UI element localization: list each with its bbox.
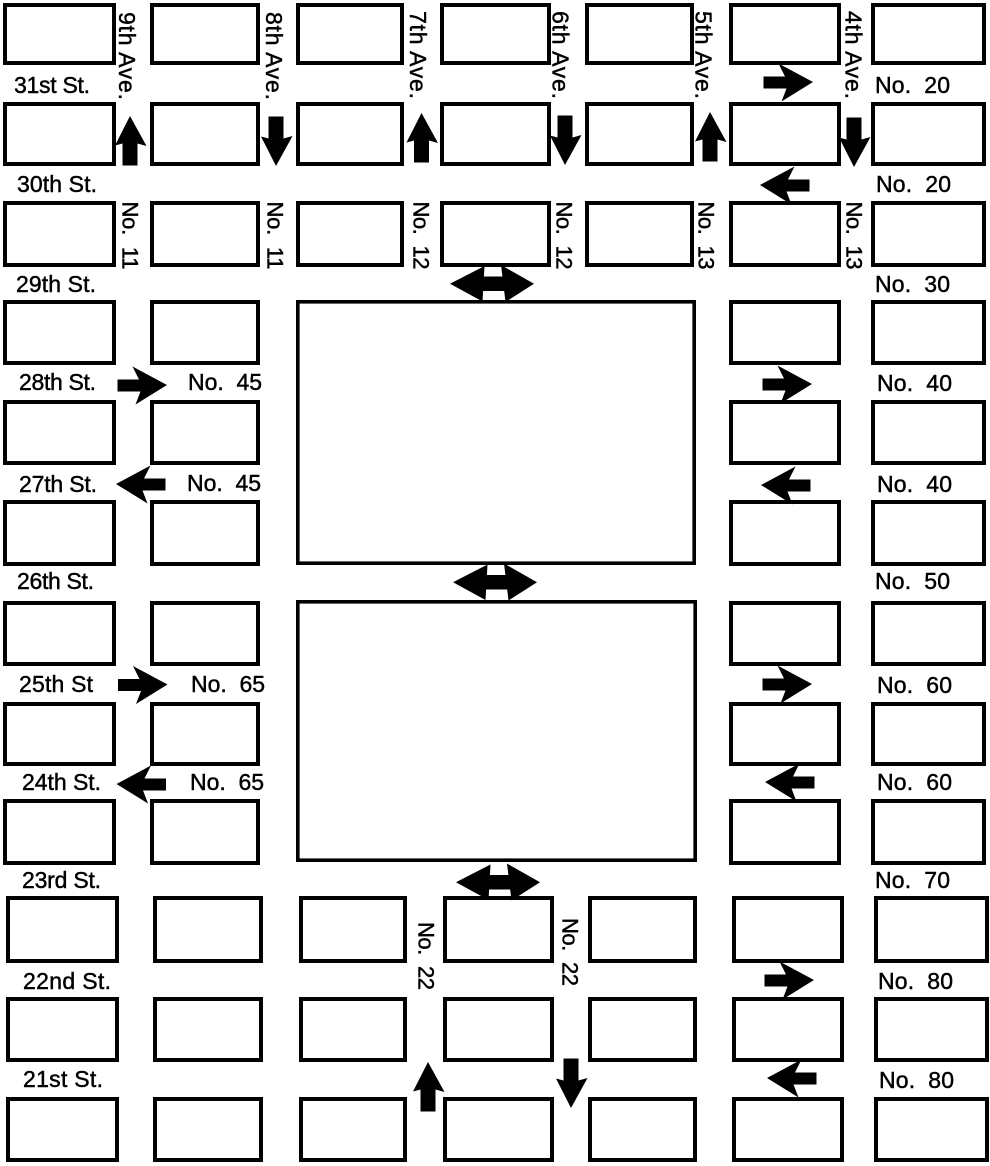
svg-text:9th Ave.: 9th Ave. [114,12,140,100]
svg-text:No. 30: No. 30 [875,271,950,297]
svg-text:5th Ave.: 5th Ave. [691,11,717,99]
svg-text:27th St.: 27th St. [19,471,97,497]
svg-text:24th St.: 24th St. [22,769,101,795]
svg-text:No. 12: No. 12 [409,202,434,270]
svg-text:31st St.: 31st St. [14,72,90,98]
svg-text:25th St: 25th St [19,671,94,697]
svg-text:No. 80: No. 80 [878,968,953,994]
svg-text:4th Ave.: 4th Ave. [841,11,867,99]
svg-text:No. 13: No. 13 [842,202,867,270]
svg-text:No. 40: No. 40 [877,370,952,396]
svg-text:30th St.: 30th St. [17,171,97,197]
svg-text:No. 20: No. 20 [876,171,951,197]
svg-text:29th St.: 29th St. [16,271,96,297]
svg-text:No. 45: No. 45 [188,369,262,395]
svg-text:No. 50: No. 50 [875,568,950,594]
svg-text:No. 80: No. 80 [879,1067,954,1093]
svg-text:No. 20: No. 20 [875,72,950,98]
svg-text:7th Ave.: 7th Ave. [405,11,431,99]
svg-text:No. 22: No. 22 [414,922,439,990]
svg-text:No. 65: No. 65 [191,671,265,697]
svg-text:22nd St.: 22nd St. [23,968,111,994]
svg-text:No. 70: No. 70 [875,867,950,893]
svg-text:No. 13: No. 13 [694,202,719,270]
svg-text:8th Ave.: 8th Ave. [261,12,287,100]
svg-text:28th St.: 28th St. [19,369,96,395]
svg-text:No. 60: No. 60 [877,769,952,795]
svg-text:No. 12: No. 12 [552,202,577,270]
svg-text:No. 22: No. 22 [558,918,583,986]
svg-text:No. 45: No. 45 [187,470,261,496]
svg-text:No. 11: No. 11 [263,202,288,270]
svg-text:6th Ave.: 6th Ave. [548,11,574,99]
svg-text:No. 11: No. 11 [118,202,143,270]
svg-text:No. 65: No. 65 [190,769,264,795]
svg-text:23rd St.: 23rd St. [22,867,101,893]
svg-text:21st St.: 21st St. [23,1066,103,1092]
svg-text:No. 60: No. 60 [877,672,952,698]
svg-text:No. 40: No. 40 [877,471,952,497]
svg-text:26th St.: 26th St. [17,568,94,594]
